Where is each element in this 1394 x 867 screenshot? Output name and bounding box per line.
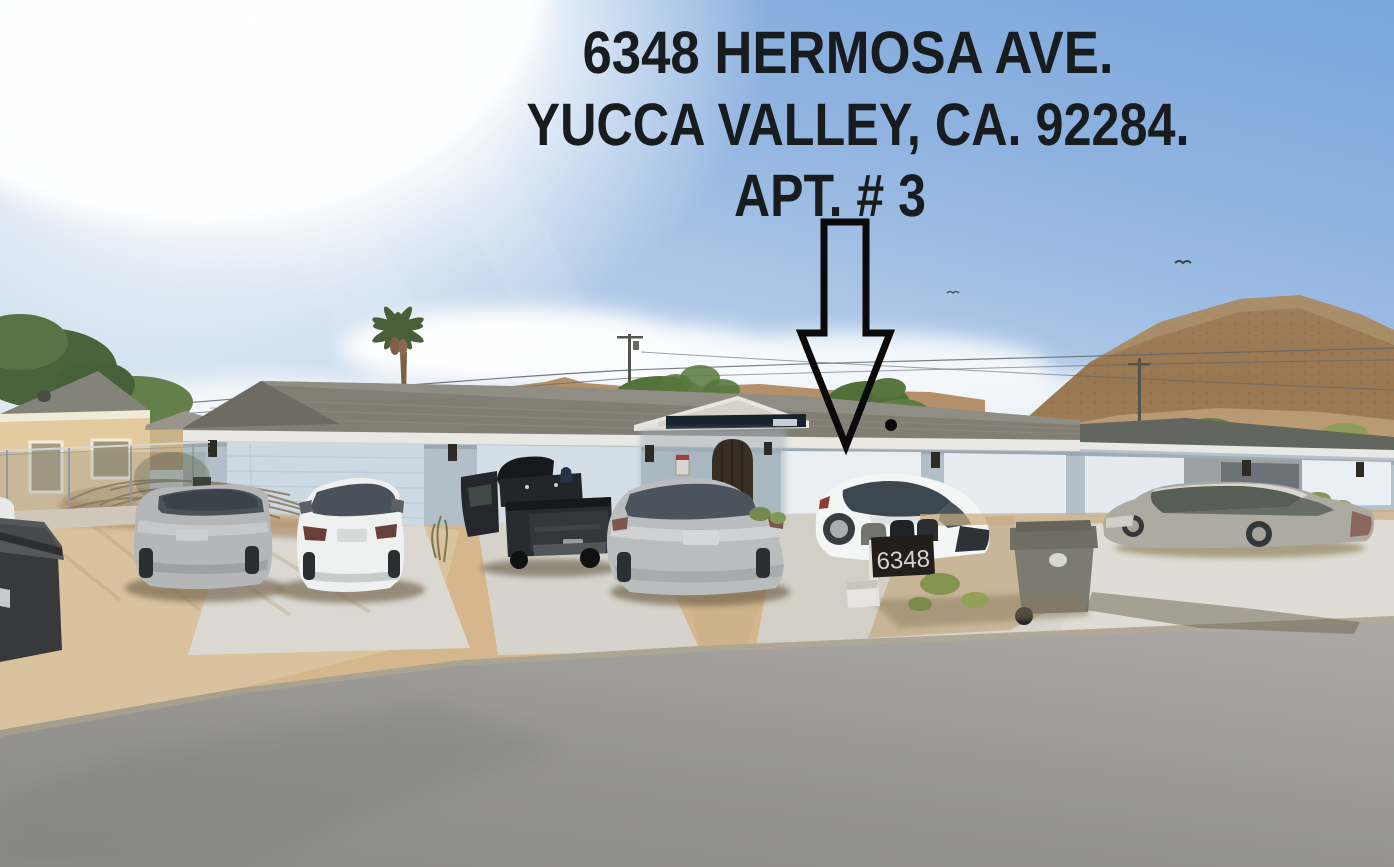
svg-text:6348 HERMOSA AVE.: 6348 HERMOSA AVE. (583, 19, 1114, 86)
svg-text:6348: 6348 (876, 546, 931, 576)
svg-text:YUCCA VALLEY, CA. 92284.: YUCCA VALLEY, CA. 92284. (527, 91, 1190, 158)
